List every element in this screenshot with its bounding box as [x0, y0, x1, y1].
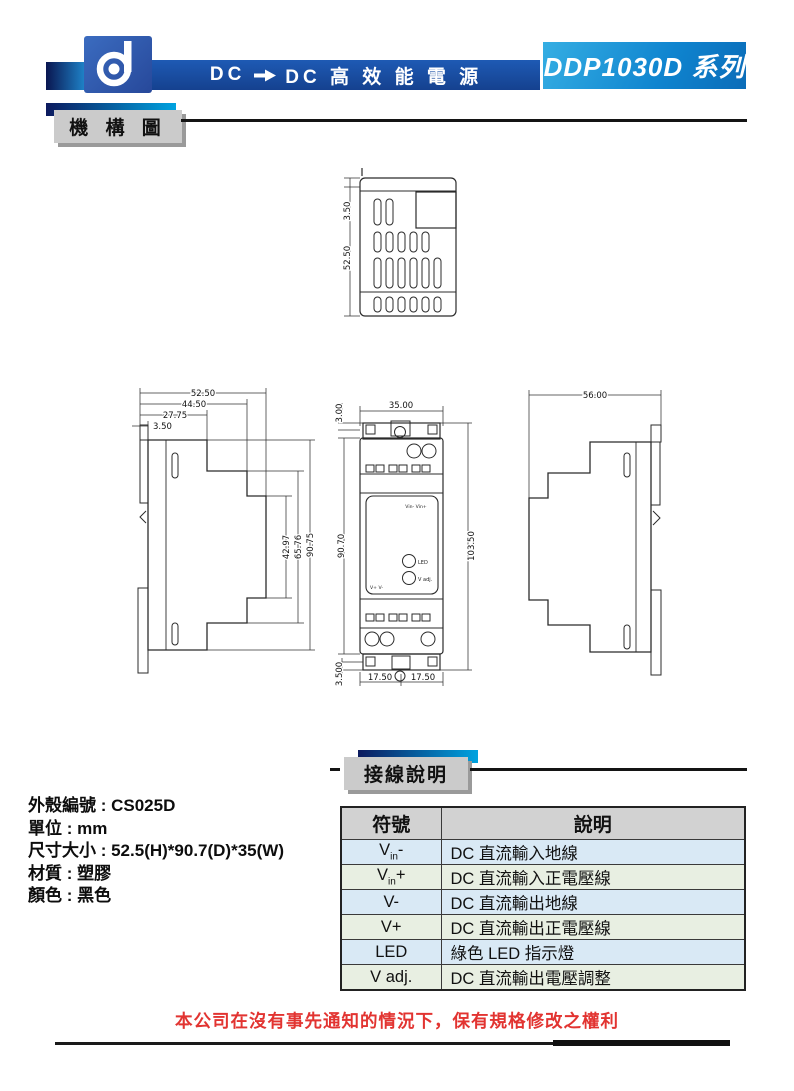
spec-block: 外殼編號 : CS025D 單位 : mm 尺寸大小 : 52.5(H)*90.… — [28, 795, 340, 908]
dim-label: 3.50 — [153, 422, 172, 432]
dim-label: 90.75 — [306, 533, 316, 557]
description-cell: DC 直流輸出電壓調整 — [441, 965, 745, 991]
spec-line-case-number: 外殼編號 : CS025D — [28, 795, 340, 818]
table-row: V adj.DC 直流輸出電壓調整 — [341, 965, 745, 991]
spec-line-color: 顏色 : 黑色 — [28, 885, 340, 908]
front-view-panel-labels: Vin- Vin+ LED V adj. V+ V- — [370, 504, 433, 591]
right-view-dim-labels: 56.00 — [583, 391, 607, 401]
description-cell: 綠色 LED 指示燈 — [441, 940, 745, 965]
description-cell: DC 直流輸出正電壓線 — [441, 915, 745, 940]
brand-logo — [84, 36, 152, 93]
column-header-symbol: 符號 — [341, 807, 441, 840]
dim-label: 35.00 — [389, 401, 413, 411]
mechanism-section-rule — [181, 119, 747, 122]
dim-label: 42.97 — [282, 535, 292, 559]
wiring-section-label: 接線說明 — [344, 757, 468, 790]
front-view-dim-lines — [338, 403, 472, 686]
mechanism-section-text: 機 構 圖 — [69, 113, 167, 140]
table-row: Vin-DC 直流輸入地線 — [341, 840, 745, 865]
panel-led-label: LED — [418, 560, 428, 566]
drawing-top-view: 3.50 52.50 — [334, 166, 464, 322]
drawing-right-side-view: 56.00 — [503, 385, 703, 685]
dim-label: 56.00 — [583, 391, 607, 401]
dim-label: 44.50 — [182, 400, 206, 410]
description-cell: DC 直流輸入正電壓線 — [441, 865, 745, 890]
table-row: V+DC 直流輸出正電壓線 — [341, 915, 745, 940]
dim-label: 3.50 — [343, 202, 353, 221]
table-row: LED綠色 LED 指示燈 — [341, 940, 745, 965]
symbol-cell: Vin+ — [341, 865, 441, 890]
header-title-bar: DC DC 高 效 能 電 源 — [152, 60, 540, 90]
mechanism-section-label: 機 構 圖 — [54, 110, 182, 143]
d-logo-icon — [84, 36, 152, 93]
header-gradient-strip — [46, 62, 86, 90]
panel-vout-label: V+ V- — [370, 585, 383, 591]
disclaimer-text: 本公司在沒有事先通知的情況下，保有規格修改之權利 — [0, 1008, 794, 1033]
symbol-cell: V adj. — [341, 965, 441, 991]
title-dc-left: DC — [210, 64, 245, 86]
spec-line-material: 材質 : 塑膠 — [28, 863, 340, 886]
wiring-section-text: 接線說明 — [364, 760, 448, 787]
right-view-dim-lines — [529, 390, 661, 498]
column-header-description: 說明 — [441, 807, 745, 840]
datasheet-page: DC DC 高 效 能 電 源 DDP1030D 系列 機 構 圖 — [0, 0, 794, 1091]
panel-vin-label: Vin- Vin+ — [405, 504, 427, 510]
dim-label: 52.50 — [343, 246, 353, 270]
dim-label: 17.50 — [411, 673, 435, 683]
table-row: V-DC 直流輸出地線 — [341, 890, 745, 915]
table-header-row: 符號 說明 — [341, 807, 745, 840]
dim-label: 3.00 — [335, 404, 345, 423]
front-view-body — [360, 421, 443, 681]
wiring-section-left-dash — [330, 768, 340, 771]
wiring-table: 符號 說明 Vin-DC 直流輸入地線Vin+DC 直流輸入正電壓線V-DC 直… — [340, 806, 746, 991]
front-view-dim-labels: 35.00 3.00 90.70 103.50 3.500 17.50 17.5… — [335, 401, 477, 686]
title-rest: DC 高 效 能 電 源 — [285, 62, 482, 89]
left-view-dim-labels: 52.50 44.50 27.75 3.50 42.97 65.76 90.75 — [153, 389, 316, 559]
symbol-cell: Vin- — [341, 840, 441, 865]
dim-label: 3.500 — [335, 662, 345, 686]
bottom-rule-thick-segment — [553, 1040, 730, 1046]
panel-vadj-label: V adj. — [418, 577, 433, 583]
drawing-left-side-view: 52.50 44.50 27.75 3.50 42.97 65.76 90.75 — [112, 383, 327, 688]
dim-label: 27.75 — [163, 411, 187, 421]
symbol-cell: V- — [341, 890, 441, 915]
wiring-table-body: Vin-DC 直流輸入地線Vin+DC 直流輸入正電壓線V-DC 直流輸出地線V… — [341, 840, 745, 991]
symbol-cell: V+ — [341, 915, 441, 940]
dim-label: 17.50 — [368, 673, 392, 683]
wiring-table-head: 符號 說明 — [341, 807, 745, 840]
drawing-front-view: Vin- Vin+ LED V adj. V+ V- 35.00 3.00 90… — [330, 381, 495, 693]
series-badge: DDP1030D 系列 — [543, 42, 746, 89]
arrow-right-icon — [254, 69, 276, 82]
right-view-body — [529, 425, 661, 675]
description-cell: DC 直流輸入地線 — [441, 840, 745, 865]
spec-line-unit: 單位 : mm — [28, 818, 340, 841]
symbol-cell: LED — [341, 940, 441, 965]
spec-line-dimensions: 尺寸大小 : 52.5(H)*90.7(D)*35(W) — [28, 840, 340, 863]
dim-label: 65.76 — [294, 535, 304, 559]
table-row: Vin+DC 直流輸入正電壓線 — [341, 865, 745, 890]
wiring-section-rule — [470, 768, 747, 771]
top-view-dim-labels: 3.50 52.50 — [343, 202, 353, 271]
description-cell: DC 直流輸出地線 — [441, 890, 745, 915]
series-label: DDP1030D 系列 — [544, 47, 746, 84]
dim-label: 90.70 — [337, 534, 347, 558]
dim-label: 103.50 — [467, 531, 477, 561]
top-view-body — [360, 168, 456, 316]
dim-label: 52.50 — [191, 389, 215, 399]
